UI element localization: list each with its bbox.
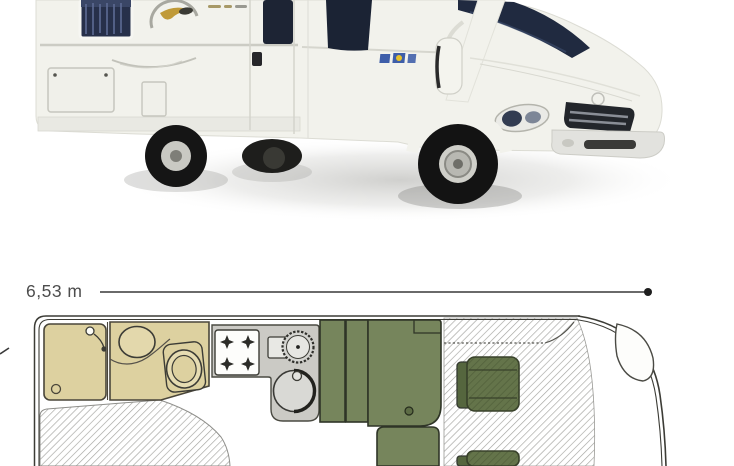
edge-tick: [0, 348, 9, 354]
fog-light: [562, 139, 574, 147]
front-corner-wedge: [616, 324, 654, 381]
door-handle: [252, 52, 262, 66]
service-hatch-small: [142, 82, 166, 116]
cab-seat-driver: [457, 357, 519, 411]
rear-wheel: [145, 125, 207, 187]
kitchen-round-sink-large: [274, 371, 315, 412]
toilet: [162, 341, 206, 393]
rear-wheel-inner: [242, 139, 302, 173]
kitchen-round-sink-small: [283, 332, 314, 363]
rear-window: [80, 0, 132, 38]
dimension-end-dot: [644, 288, 652, 296]
washbasin: [119, 327, 155, 358]
hob-4-burner: [215, 330, 259, 375]
door-window: [263, 0, 293, 44]
motorhome-photo: [0, 0, 734, 240]
model-text-decal: [208, 5, 247, 8]
service-hatch-large: [48, 68, 114, 112]
shower-drain: [52, 385, 61, 394]
dinette-side-seat: [377, 427, 439, 466]
bumper-air-intake: [584, 140, 636, 149]
bathroom: [108, 322, 210, 400]
wardrobe: [320, 320, 345, 422]
kitchen-block: [212, 325, 319, 421]
brochure-panel: 6,53 m: [0, 0, 734, 466]
dinette-bench: [368, 320, 441, 426]
front-bumper: [552, 130, 665, 158]
dinette-seat-back: [346, 320, 368, 422]
rear-bed-hatched: [40, 400, 230, 466]
dimension-line: [100, 288, 652, 296]
floorplan-diagram: [0, 280, 734, 466]
brand-decal-blue: [379, 53, 416, 63]
shower-cubicle: [44, 324, 107, 400]
belt-anchor: [405, 407, 413, 415]
cab-side-window: [326, 0, 372, 51]
